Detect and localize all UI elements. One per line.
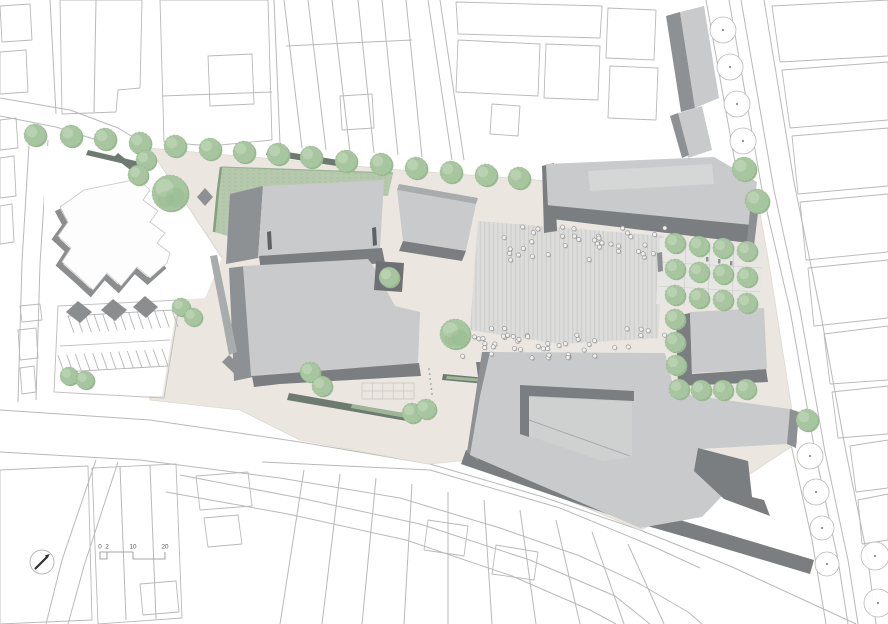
plaza-dot bbox=[547, 353, 551, 357]
tree-highlight bbox=[166, 137, 177, 148]
plaza-dot bbox=[477, 337, 481, 341]
site-plan-drawing: 021020 bbox=[0, 0, 888, 624]
plaza-dot bbox=[616, 249, 620, 253]
tree-highlight bbox=[715, 266, 725, 276]
plaza-dot bbox=[501, 334, 505, 338]
plaza-dot bbox=[653, 232, 657, 236]
tree-highlight bbox=[739, 295, 749, 305]
bollard bbox=[718, 259, 720, 264]
tree-highlight bbox=[174, 300, 183, 309]
street-tree-center bbox=[729, 66, 731, 68]
plaza-dot bbox=[489, 352, 493, 356]
tree-highlight bbox=[667, 334, 677, 344]
tree-highlight bbox=[734, 160, 746, 172]
bollard bbox=[706, 257, 708, 262]
plaza-dot bbox=[507, 251, 511, 255]
tree-highlight bbox=[62, 369, 71, 378]
scale-bar-label: 0 bbox=[98, 544, 102, 551]
building-north-west-a-part bbox=[258, 180, 384, 258]
plaza-dot bbox=[512, 346, 516, 350]
tree-highlight bbox=[671, 381, 681, 391]
tree-highlight bbox=[201, 140, 212, 151]
plaza-dot bbox=[593, 354, 597, 358]
tree-highlight bbox=[131, 134, 142, 145]
street-tree bbox=[861, 542, 888, 570]
tree-highlight bbox=[130, 167, 140, 177]
plaza-dot bbox=[662, 333, 666, 337]
tree-highlight bbox=[62, 127, 73, 138]
tree-highlight bbox=[407, 159, 418, 170]
bollard bbox=[730, 261, 732, 266]
plaza-dot bbox=[572, 227, 576, 231]
street-tree bbox=[730, 128, 756, 154]
plaza-dot bbox=[625, 231, 629, 235]
plaza-dot bbox=[560, 234, 564, 238]
tree-highlight bbox=[691, 264, 701, 274]
dotted-path-dot bbox=[428, 368, 430, 370]
building-east-part bbox=[690, 308, 767, 373]
plaza-dot bbox=[612, 345, 616, 349]
plaza-stripes bbox=[470, 221, 664, 344]
tree-highlight bbox=[269, 145, 280, 156]
tree-highlight bbox=[715, 240, 725, 250]
plaza-dot bbox=[577, 237, 581, 241]
plaza-dot bbox=[597, 236, 601, 240]
tree-texture bbox=[157, 191, 173, 207]
plaza-dot bbox=[592, 339, 596, 343]
plaza-dot bbox=[575, 333, 579, 337]
street-tree-center bbox=[736, 103, 738, 105]
plaza-dot bbox=[518, 347, 522, 351]
street-tree bbox=[864, 589, 888, 617]
plaza-dot bbox=[525, 335, 529, 339]
plaza-dot bbox=[587, 342, 591, 346]
street-tree-center bbox=[877, 602, 879, 604]
tree-highlight bbox=[302, 364, 312, 374]
plaza-dot bbox=[491, 345, 495, 349]
plaza-dot bbox=[600, 241, 604, 245]
tree-highlight bbox=[302, 148, 313, 159]
tree-highlight bbox=[337, 152, 348, 163]
street-tree-center bbox=[809, 455, 811, 457]
plaza-dot bbox=[530, 254, 534, 258]
plaza-dot bbox=[620, 226, 624, 230]
plaza-dot bbox=[651, 251, 655, 255]
plaza-dot bbox=[546, 341, 550, 345]
tree-texture bbox=[445, 333, 459, 347]
tree-highlight bbox=[418, 401, 428, 411]
plaza-dot bbox=[643, 243, 647, 247]
plaza-dot bbox=[545, 346, 549, 350]
street-tree-center bbox=[874, 555, 876, 557]
street-tree-circle bbox=[864, 589, 888, 617]
north-arrow bbox=[30, 550, 54, 574]
plaza-dot bbox=[582, 348, 586, 352]
plaza-dot bbox=[516, 253, 520, 257]
plaza-dot bbox=[563, 342, 567, 346]
tree-highlight bbox=[667, 287, 677, 297]
plaza-dot bbox=[508, 247, 512, 251]
plaza-dot bbox=[616, 244, 620, 248]
plaza-dot bbox=[511, 334, 515, 338]
plaza-dot bbox=[521, 246, 525, 250]
dotted-path-dot bbox=[431, 388, 433, 390]
street-tree-center bbox=[815, 491, 817, 493]
tree-highlight bbox=[186, 310, 195, 319]
plaza-dot bbox=[502, 235, 506, 239]
plaza-dot bbox=[482, 346, 486, 350]
street-tree bbox=[803, 479, 829, 505]
plaza-dot bbox=[563, 243, 567, 247]
tree-highlight bbox=[747, 192, 759, 204]
plaza-dot bbox=[626, 345, 630, 349]
tree-highlight bbox=[693, 382, 703, 392]
street-tree-center bbox=[742, 140, 744, 142]
plaza-dot bbox=[536, 344, 540, 348]
tree-highlight bbox=[739, 243, 749, 253]
plaza-dot bbox=[530, 240, 534, 244]
plaza-dot bbox=[609, 242, 613, 246]
tree-highlight bbox=[668, 357, 678, 367]
tree-highlight bbox=[442, 163, 453, 174]
tree-highlight bbox=[314, 378, 324, 388]
dotted-path-dot bbox=[429, 373, 431, 375]
tree-highlight bbox=[404, 405, 414, 415]
tree-highlight bbox=[691, 290, 701, 300]
dotted-path-dot bbox=[431, 393, 433, 395]
plaza-dot bbox=[530, 356, 534, 360]
plaza-dot bbox=[572, 234, 576, 238]
plaza-dot bbox=[520, 225, 524, 229]
tree-highlight bbox=[667, 261, 677, 271]
plaza-dot bbox=[560, 225, 564, 229]
tree-highlight bbox=[96, 130, 107, 141]
plaza-dot bbox=[587, 257, 591, 261]
plaza-dot bbox=[636, 249, 640, 253]
street-tree bbox=[797, 443, 823, 469]
plaza-dot bbox=[508, 258, 512, 262]
dotted-path-dot bbox=[429, 378, 431, 380]
plaza-dot bbox=[576, 337, 580, 341]
scale-bar-label: 2 bbox=[105, 544, 109, 551]
tree-highlight bbox=[798, 411, 809, 422]
tree-highlight bbox=[715, 382, 725, 392]
tree-highlight bbox=[739, 269, 749, 279]
tree-highlight bbox=[667, 311, 677, 321]
plaza-dot bbox=[641, 252, 645, 256]
plaza-dot bbox=[546, 252, 550, 256]
plaza-dot bbox=[639, 333, 643, 337]
plaza-dot bbox=[483, 342, 487, 346]
plaza-dot bbox=[557, 343, 561, 347]
plaza-dot bbox=[592, 238, 596, 242]
plaza-dot bbox=[502, 326, 506, 330]
dotted-path-dot bbox=[430, 383, 432, 385]
plaza-dot bbox=[531, 230, 535, 234]
scale-bar-label: 20 bbox=[161, 544, 169, 551]
tree-highlight bbox=[510, 169, 521, 180]
tree-highlight bbox=[78, 373, 87, 382]
street-tree bbox=[815, 552, 839, 576]
tree-highlight bbox=[715, 292, 725, 302]
plaza-dot bbox=[517, 337, 521, 341]
plaza-dot bbox=[625, 327, 629, 331]
plaza-dot bbox=[481, 336, 485, 340]
building-north-west-a-part bbox=[226, 186, 263, 264]
plaza-dot bbox=[566, 355, 570, 359]
tree-highlight bbox=[372, 155, 383, 166]
plaza-dot bbox=[597, 245, 601, 249]
street-tree-center bbox=[722, 29, 724, 31]
scale-bar-label: 10 bbox=[129, 544, 137, 551]
street-tree bbox=[710, 17, 736, 43]
plaza-dot bbox=[646, 329, 650, 333]
plaza-dot bbox=[639, 327, 643, 331]
tree-highlight bbox=[381, 269, 391, 279]
street-tree-center bbox=[826, 563, 828, 565]
street-tree bbox=[724, 91, 750, 117]
tree-highlight bbox=[235, 143, 246, 154]
tree-highlight bbox=[477, 166, 488, 177]
tree-highlight bbox=[667, 235, 677, 245]
building-east bbox=[676, 308, 768, 386]
street-tree-center bbox=[821, 527, 823, 529]
tree-highlight bbox=[691, 238, 701, 248]
plaza-dot bbox=[541, 347, 545, 351]
site-plan: 021020 bbox=[0, 0, 888, 624]
street-tree bbox=[717, 54, 743, 80]
plaza-dot bbox=[536, 227, 540, 231]
plaza-dot bbox=[663, 226, 667, 230]
plaza-dot bbox=[472, 335, 476, 339]
plaza-dot bbox=[460, 354, 464, 358]
tree-highlight bbox=[26, 126, 37, 137]
street-tree bbox=[810, 516, 834, 540]
tree-highlight bbox=[138, 152, 148, 162]
bench bbox=[657, 252, 663, 272]
plaza-dot bbox=[489, 326, 493, 330]
tree-highlight bbox=[738, 381, 748, 391]
